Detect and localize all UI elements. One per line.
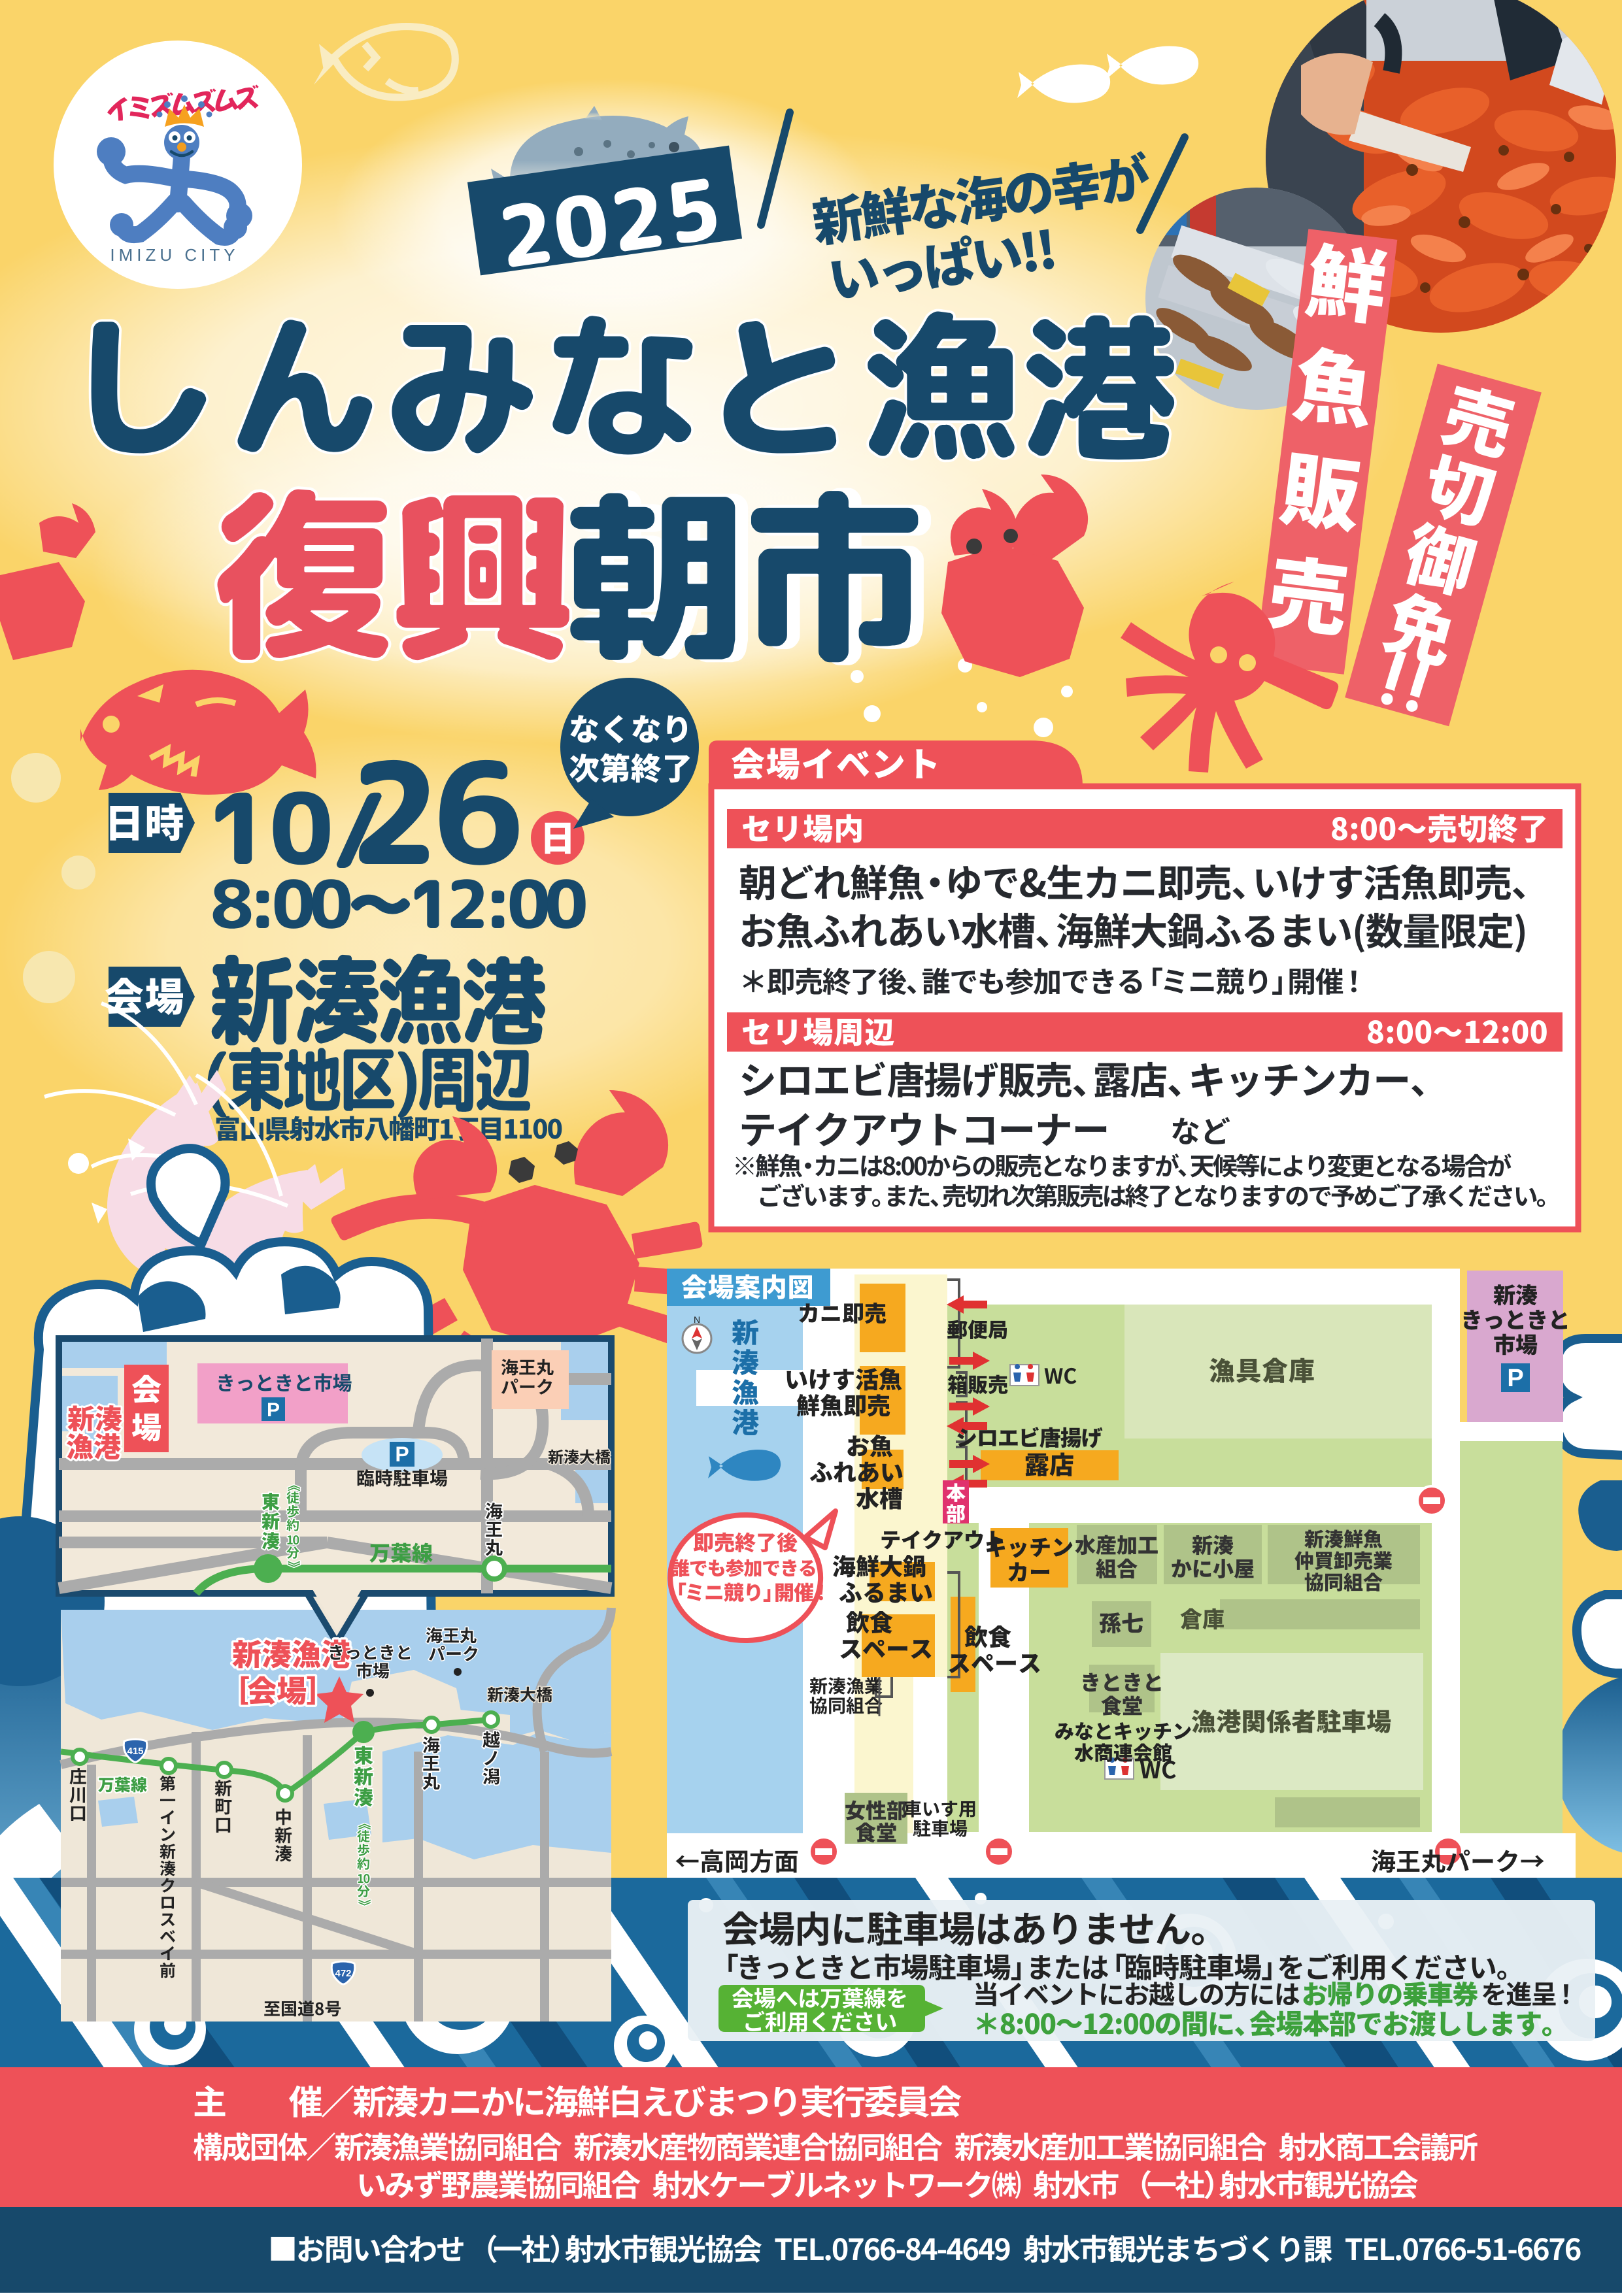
svg-text:IMIZU CITY: IMIZU CITY	[110, 245, 239, 265]
svg-text:P: P	[395, 1442, 409, 1466]
svg-text:472: 472	[335, 1968, 351, 1979]
svg-text:P: P	[267, 1399, 280, 1421]
svg-text:P: P	[1507, 1365, 1523, 1392]
svg-text:N: N	[694, 1314, 700, 1325]
svg-text:415: 415	[127, 1746, 143, 1757]
